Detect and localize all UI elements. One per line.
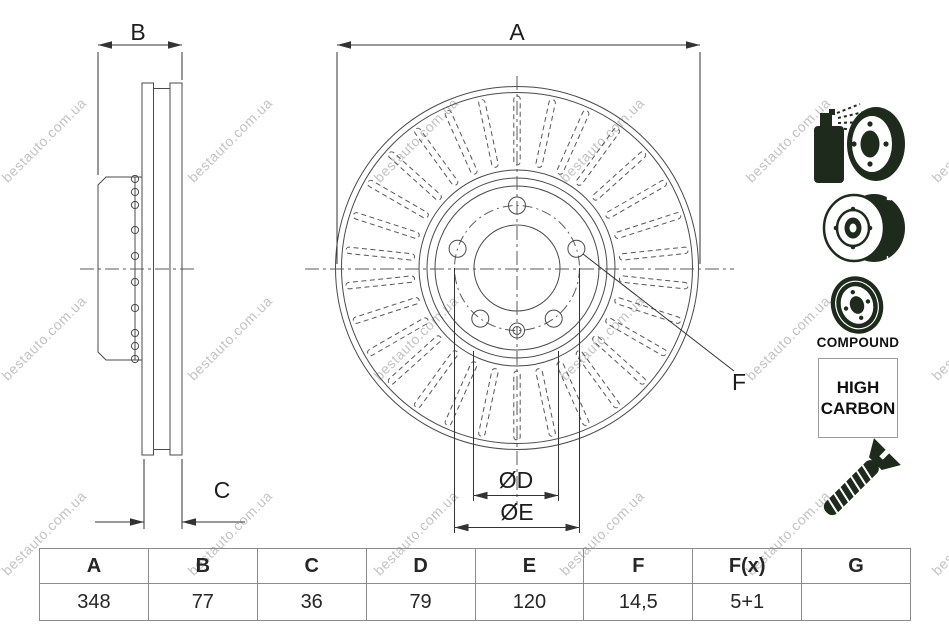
col-header-c: C (257, 549, 366, 584)
value-c: 36 (257, 584, 366, 621)
value-g (802, 584, 911, 621)
dimension-annotations: A B C ØD (95, 19, 746, 533)
col-header-b: B (148, 549, 257, 584)
brake-disc-technical-drawing: bestauto.com.uabestauto.com.uabestauto.c… (0, 0, 949, 633)
col-header-e: E (475, 549, 584, 584)
dim-label-b: B (130, 19, 145, 45)
col-header-a: A (40, 549, 149, 584)
high-carbon-line2: CARBON (821, 398, 896, 419)
col-header-fx: F(x) (693, 549, 802, 584)
dimension-spec-table: A B C D E F F(x) G 348 77 36 79 120 14,5… (39, 548, 911, 621)
value-fx: 5+1 (693, 584, 802, 621)
countersunk-screw-icon (813, 437, 901, 525)
col-header-g: G (802, 549, 911, 584)
dim-label-a: A (509, 19, 525, 45)
dim-label-c: C (214, 477, 231, 503)
value-e: 120 (475, 584, 584, 621)
high-carbon-line1: HIGH (837, 377, 880, 398)
dim-label-d: ØD (499, 467, 534, 493)
vented-disc-icon (824, 194, 913, 262)
spec-value-row: 348 77 36 79 120 14,5 5+1 (40, 584, 911, 621)
value-d: 79 (366, 584, 475, 621)
high-carbon-badge: HIGH CARBON (818, 358, 898, 438)
value-a: 348 (40, 584, 149, 621)
value-f: 14,5 (584, 584, 693, 621)
spec-header-row: A B C D E F F(x) G (40, 549, 911, 584)
dim-label-e: ØE (500, 499, 533, 525)
col-header-f: F (584, 549, 693, 584)
screw-threads (825, 464, 874, 513)
front-view-drawing (305, 76, 734, 505)
coated-disc-spray-icon (814, 104, 905, 183)
col-header-d: D (366, 549, 475, 584)
compound-disc-icon: COMPOUND (817, 269, 900, 350)
technical-drawing-svg: A B C ØD (0, 0, 949, 633)
value-b: 77 (148, 584, 257, 621)
compound-label: COMPOUND (817, 335, 900, 350)
dim-label-f: F (732, 369, 746, 395)
